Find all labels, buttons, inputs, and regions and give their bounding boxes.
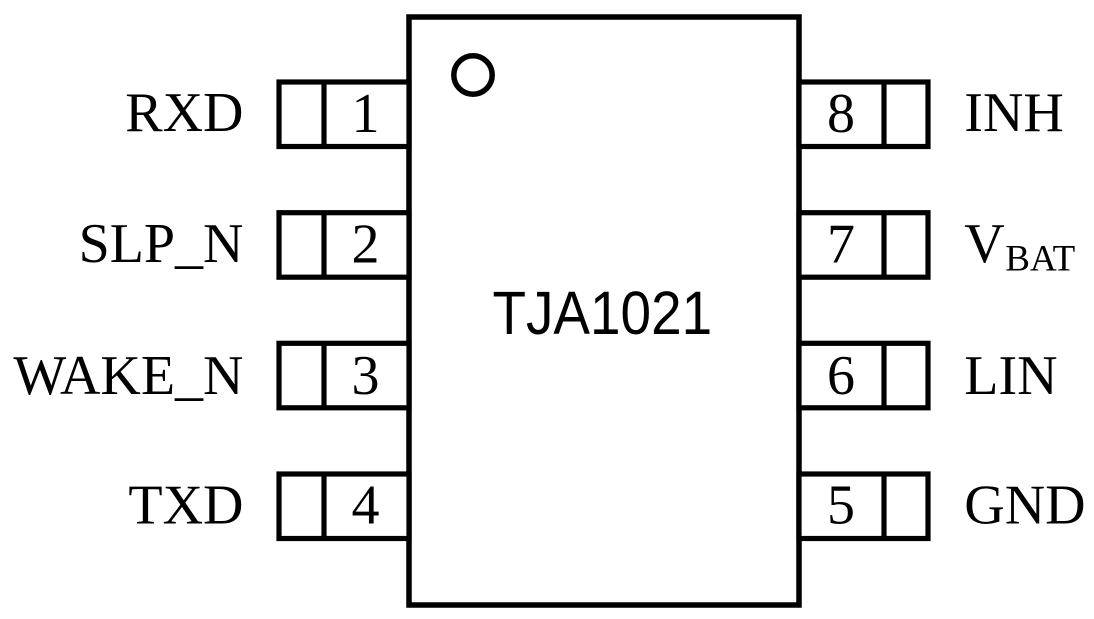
svg-text:7: 7 (827, 214, 855, 276)
svg-text:RXD: RXD (125, 82, 243, 144)
svg-text:V: V (964, 213, 1004, 275)
svg-text:TXD: TXD (128, 474, 243, 536)
svg-text:8: 8 (827, 83, 855, 145)
svg-text:LIN: LIN (964, 345, 1057, 407)
svg-text:WAKE_N: WAKE_N (13, 345, 243, 407)
svg-text:5: 5 (827, 475, 855, 537)
svg-text:1: 1 (352, 83, 380, 145)
svg-text:3: 3 (352, 345, 380, 407)
svg-text:4: 4 (352, 475, 380, 537)
svg-text:INH: INH (964, 82, 1064, 144)
svg-text:2: 2 (352, 214, 380, 276)
svg-text:GND: GND (964, 474, 1085, 536)
svg-text:SLP_N: SLP_N (79, 213, 244, 275)
svg-text:TJA1021: TJA1021 (492, 279, 712, 347)
svg-text:BAT: BAT (1005, 239, 1075, 280)
svg-text:6: 6 (827, 345, 855, 407)
